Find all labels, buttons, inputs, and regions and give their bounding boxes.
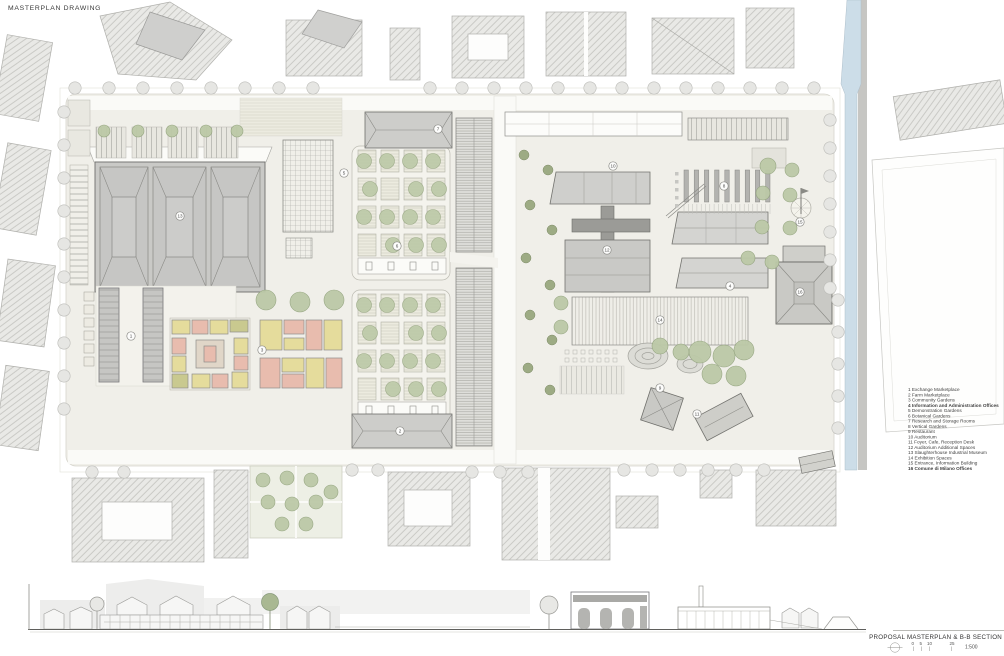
footer-rule <box>893 630 1004 631</box>
parking-rows <box>560 366 624 394</box>
scale-tick <box>921 647 922 652</box>
svg-text:14: 14 <box>657 318 663 323</box>
svg-text:6: 6 <box>396 244 399 249</box>
scale-tick <box>951 647 952 652</box>
north-arrow-icon <box>890 643 900 653</box>
svg-text:8: 8 <box>723 184 726 189</box>
scale-ratio: 1:500 <box>965 645 978 651</box>
svg-text:16: 16 <box>797 290 803 295</box>
svg-text:10: 10 <box>610 164 616 169</box>
legend-item: 16 Comune di Milano Offices <box>908 466 1004 471</box>
svg-text:11: 11 <box>695 412 700 417</box>
section-drawing <box>28 579 866 632</box>
scale-tick-label: 25 <box>950 641 955 646</box>
scale-tick <box>929 647 930 652</box>
legend: 1 Exchange Marketplace 2 Farm Marketplac… <box>908 387 1004 471</box>
svg-text:12: 12 <box>604 248 610 253</box>
svg-text:7: 7 <box>437 127 440 132</box>
svg-text:4: 4 <box>729 284 732 289</box>
scale-bar: 0 5 10 25 1:500 <box>890 641 1004 656</box>
svg-text:9: 9 <box>659 386 662 391</box>
greenhouse-strip <box>450 118 498 446</box>
museum-building <box>70 147 272 292</box>
masterplan-svg: 12345678910111213141516 <box>0 0 1004 656</box>
svg-text:5: 5 <box>343 171 346 176</box>
scale-tick <box>913 647 914 652</box>
svg-text:2: 2 <box>399 429 402 434</box>
sheet-title: MASTERPLAN DRAWING <box>8 5 101 12</box>
svg-text:13: 13 <box>177 214 183 219</box>
footer-caption: PROPOSAL MASTERPLAN & B-B SECTION <box>869 634 1002 641</box>
svg-text:1: 1 <box>130 334 133 339</box>
scale-tick-label: 0 <box>912 641 915 646</box>
svg-text:15: 15 <box>797 220 803 225</box>
scale-tick-label: 5 <box>920 641 923 646</box>
svg-text:3: 3 <box>261 348 264 353</box>
scale-tick-label: 10 <box>927 641 932 646</box>
canal <box>841 0 867 470</box>
comune-offices-building <box>776 246 832 324</box>
